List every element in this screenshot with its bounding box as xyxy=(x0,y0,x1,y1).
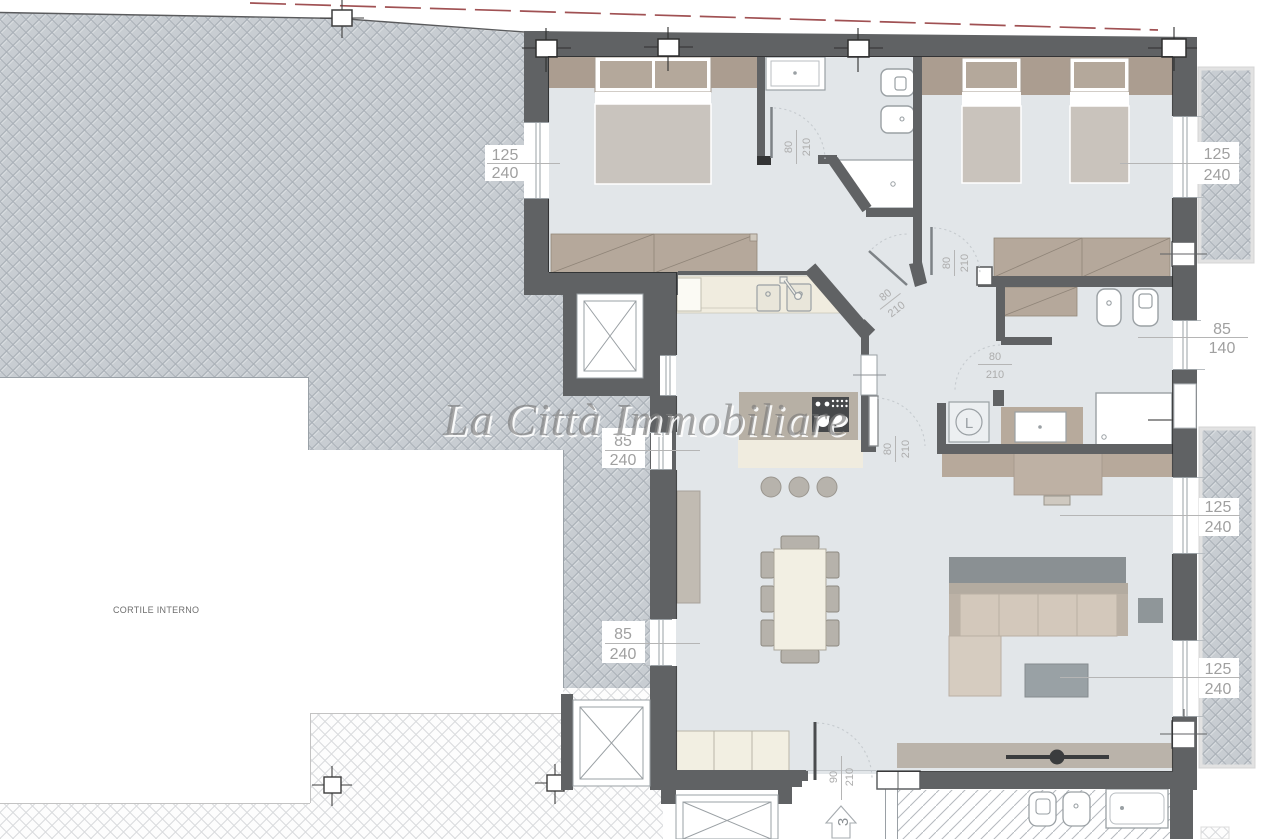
svg-text:210: 210 xyxy=(801,138,813,156)
svg-text:240: 240 xyxy=(610,452,637,469)
svg-text:La Città Immobiliare: La Città Immobiliare xyxy=(442,394,847,445)
svg-text:240: 240 xyxy=(1205,519,1232,536)
svg-text:85: 85 xyxy=(614,626,632,643)
svg-text:80: 80 xyxy=(882,443,894,455)
svg-text:210: 210 xyxy=(844,768,856,786)
svg-text:140: 140 xyxy=(1209,340,1236,357)
svg-text:80: 80 xyxy=(989,351,1001,363)
svg-text:3: 3 xyxy=(835,818,852,826)
svg-text:L: L xyxy=(965,415,973,432)
svg-text:125: 125 xyxy=(1204,146,1231,163)
svg-text:90: 90 xyxy=(828,771,840,783)
svg-text:125: 125 xyxy=(1205,661,1232,678)
svg-text:240: 240 xyxy=(1205,681,1232,698)
svg-text:240: 240 xyxy=(610,646,637,663)
svg-text:85: 85 xyxy=(1213,321,1231,338)
svg-text:210: 210 xyxy=(986,369,1004,381)
svg-text:La Città Immobiliare: La Città Immobiliare xyxy=(441,832,846,839)
svg-text:240: 240 xyxy=(492,165,519,182)
svg-text:80: 80 xyxy=(941,257,953,269)
svg-text:210: 210 xyxy=(900,440,912,458)
svg-text:240: 240 xyxy=(1204,167,1231,184)
svg-text:210: 210 xyxy=(959,254,971,272)
svg-text:CORTILE INTERNO: CORTILE INTERNO xyxy=(113,605,199,615)
svg-text:125: 125 xyxy=(1205,499,1232,516)
svg-text:80: 80 xyxy=(783,141,795,153)
svg-text:125: 125 xyxy=(492,147,519,164)
